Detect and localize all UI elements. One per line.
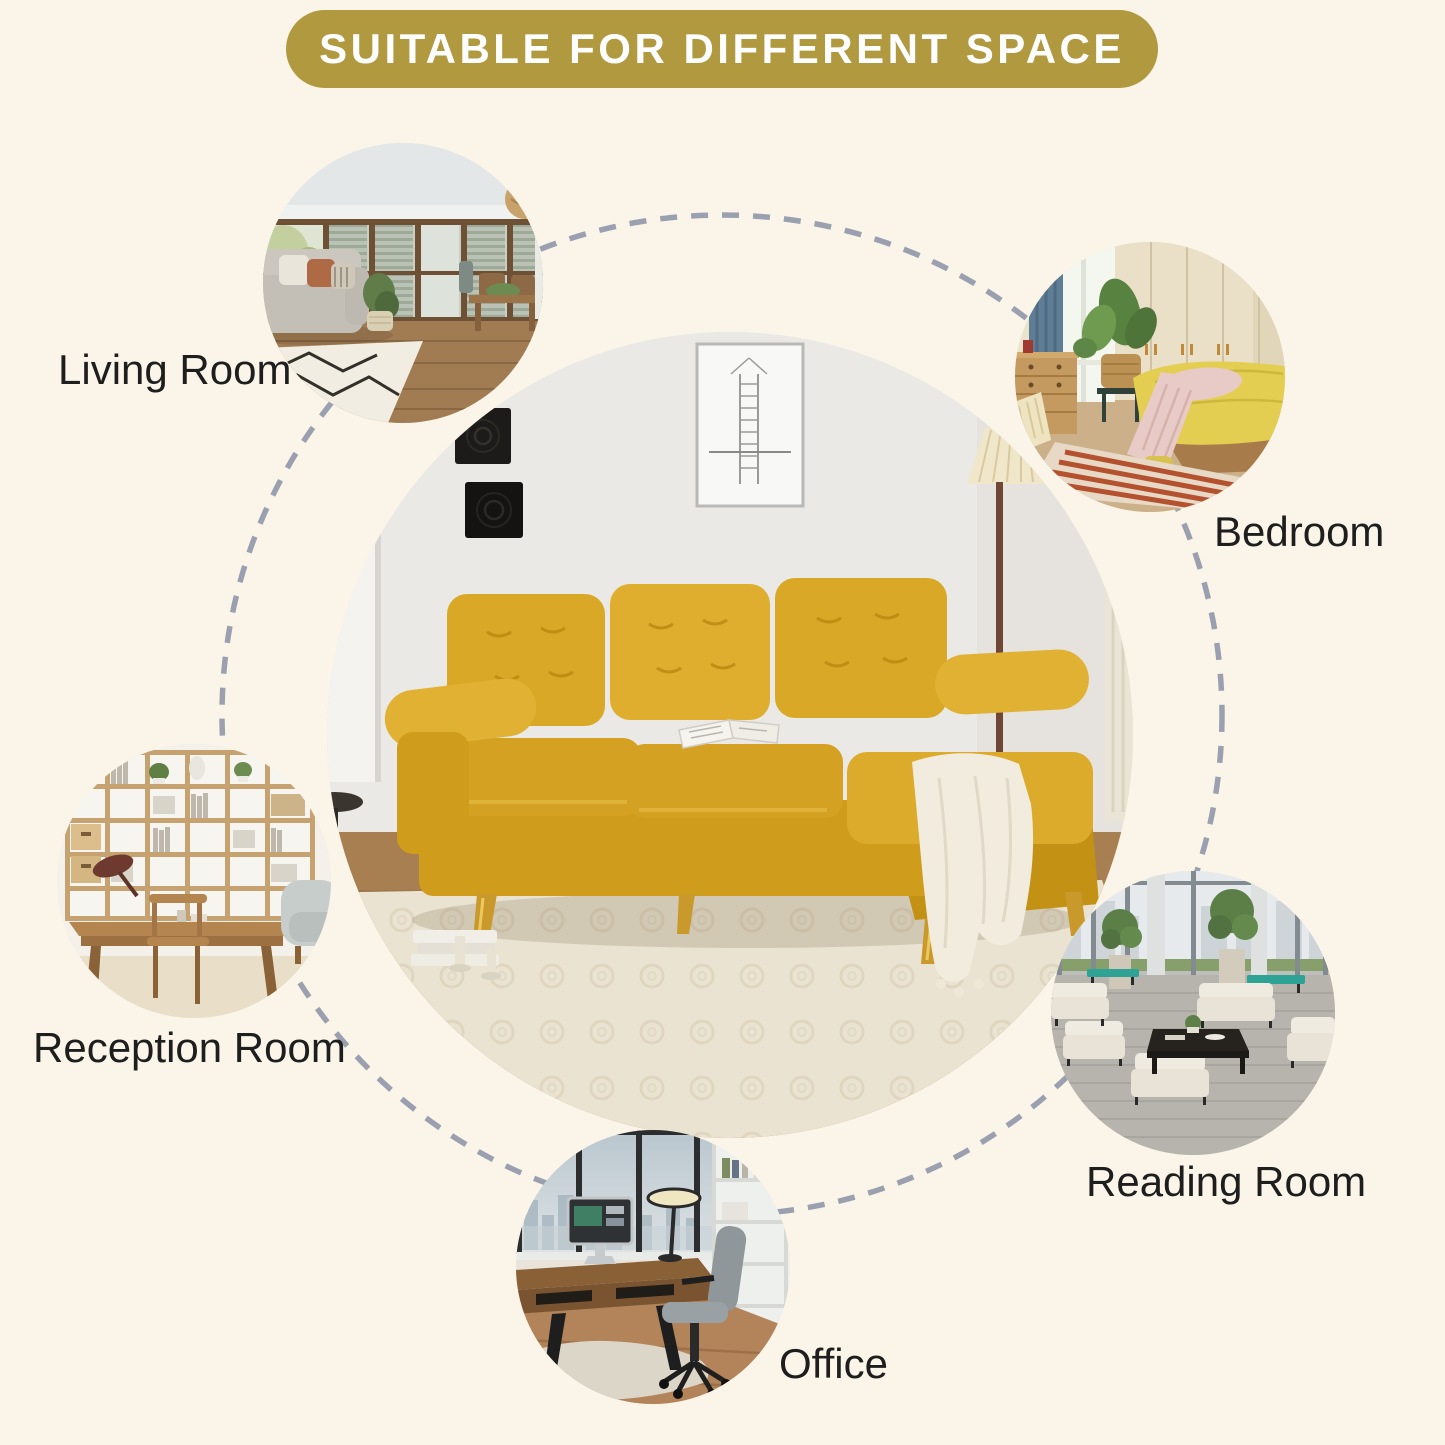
living-room-illustration [263, 143, 543, 423]
bedroom-illustration [1015, 242, 1285, 512]
label-bedroom: Bedroom [1214, 508, 1384, 555]
photo-main-yellow-sofa [327, 332, 1133, 1138]
title-banner: SUITABLE FOR DIFFERENT SPACE [286, 10, 1158, 88]
office-illustration [516, 1130, 790, 1404]
label-living-room: Living Room [58, 346, 291, 393]
title-text: SUITABLE FOR DIFFERENT SPACE [319, 25, 1125, 73]
photo-office [516, 1130, 790, 1404]
photo-reception-room [57, 744, 331, 1018]
reading-room-illustration [1051, 871, 1335, 1155]
main-sofa-illustration [327, 332, 1133, 1138]
label-office: Office [779, 1340, 888, 1387]
label-reception-room: Reception Room [33, 1024, 346, 1071]
label-reading-room: Reading Room [1086, 1158, 1366, 1205]
photo-bedroom [1015, 242, 1285, 512]
photo-reading-room [1051, 871, 1335, 1155]
product-infographic: SUITABLE FOR DIFFERENT SPACE [0, 0, 1445, 1445]
photo-living-room [263, 143, 543, 423]
wall-art-frame [697, 344, 803, 506]
reception-room-illustration [57, 744, 331, 1018]
